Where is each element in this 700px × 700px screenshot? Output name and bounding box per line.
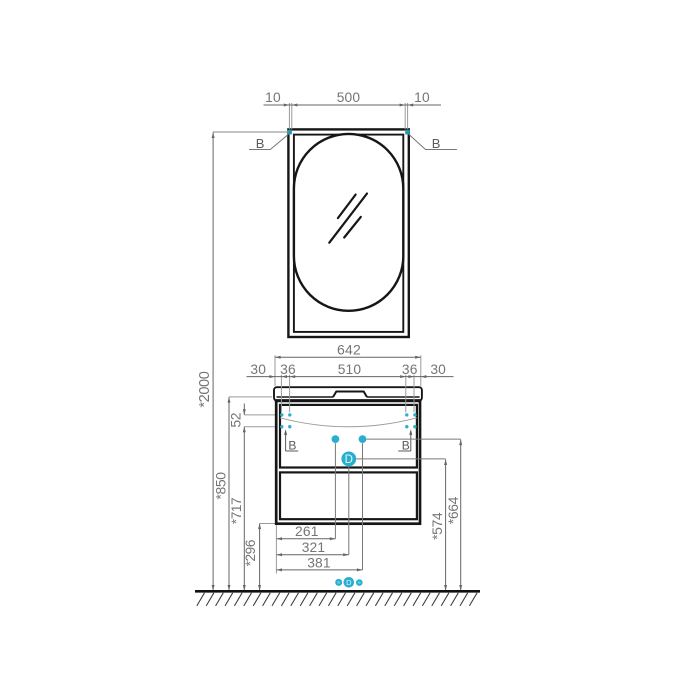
svg-text:D: D (345, 454, 353, 466)
svg-text:B: B (402, 438, 410, 452)
svg-text:B: B (256, 136, 265, 151)
svg-text:52: 52 (228, 412, 244, 427)
svg-text:*664: *664 (445, 496, 461, 524)
svg-text:*717: *717 (229, 498, 244, 524)
svg-text:36: 36 (280, 362, 296, 377)
svg-text:30: 30 (250, 362, 266, 377)
svg-text:510: 510 (338, 362, 362, 377)
svg-text:10: 10 (414, 90, 430, 105)
svg-text:10: 10 (265, 90, 281, 105)
svg-text:*574: *574 (429, 512, 445, 540)
svg-text:30: 30 (430, 362, 446, 377)
svg-text:500: 500 (337, 90, 361, 105)
svg-text:321: 321 (302, 540, 326, 555)
svg-text:261: 261 (295, 524, 319, 539)
svg-text:D: D (346, 578, 352, 587)
svg-text:*850: *850 (213, 472, 229, 500)
svg-text:381: 381 (307, 555, 331, 570)
svg-text:36: 36 (402, 362, 418, 377)
svg-text:B: B (288, 438, 296, 452)
svg-text:*2000: *2000 (197, 371, 213, 407)
svg-text:642: 642 (337, 341, 361, 357)
svg-text:B: B (432, 136, 441, 151)
svg-text:*296: *296 (243, 540, 258, 566)
